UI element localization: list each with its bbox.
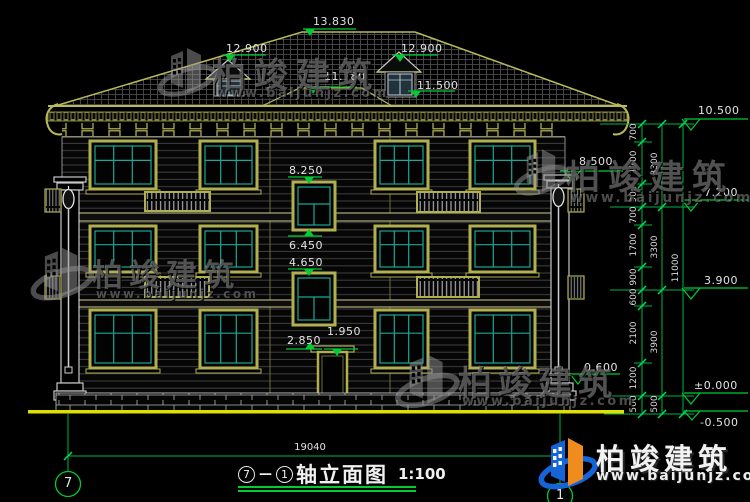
- railing: [417, 277, 479, 297]
- dim-chain-middle-label: 3900: [650, 322, 660, 362]
- watermark-url: www.baijunjz.com: [96, 287, 259, 301]
- window: [86, 310, 160, 373]
- dim-chain-inner-label: 2100: [629, 313, 639, 353]
- window: [196, 310, 261, 373]
- railing: [145, 192, 210, 211]
- watermark-url: www.baijunjz.com: [462, 394, 635, 409]
- cad-elevation-drawing: 13.830 12.900 12.900 11.780 11.500 8.500…: [0, 0, 750, 502]
- title-scale: 1:100: [398, 465, 446, 483]
- elevation-label-dormer-sill: 11.500: [417, 79, 459, 92]
- dim-chain-middle-label: 500: [650, 384, 660, 424]
- title-axis-end: 1: [276, 466, 293, 483]
- dim-chain-middle-label: 3300: [650, 227, 660, 267]
- right-level-label: 10.500: [698, 104, 740, 117]
- window: [466, 226, 539, 277]
- title-dash: —: [259, 467, 272, 482]
- brand-logo-icon: [538, 438, 598, 492]
- total-width-dimension: 19040: [288, 442, 332, 453]
- stair-window-upper: [293, 182, 335, 230]
- dentil-row: [62, 123, 565, 136]
- vent: [568, 276, 584, 299]
- axis-number-left: 7: [64, 476, 72, 491]
- right-level-label: -0.500: [700, 416, 738, 429]
- window: [371, 226, 432, 277]
- window: [371, 141, 432, 194]
- ground-line: [28, 410, 624, 414]
- watermark-url: www.baijunjz.com: [570, 190, 750, 206]
- axis-number-right: 1: [556, 488, 564, 502]
- eave-cornice: [46, 104, 628, 137]
- dim-chain-inner-label: 600: [629, 277, 639, 317]
- right-level-label: ±0.000: [694, 379, 738, 392]
- elevation-label-stair-window2-top: 4.650: [289, 256, 323, 269]
- title-axis-start: 7: [238, 466, 255, 483]
- window: [196, 141, 261, 194]
- elevation-label-stair-window-top: 8.250: [289, 164, 323, 177]
- elevation-label-door-head: 1.950: [327, 325, 361, 338]
- watermark-url: www.baijunjz.com: [216, 86, 389, 101]
- drawing-title: 7 — 1 轴立面图 1:100: [238, 459, 446, 489]
- dim-chain-outer-label: 11000: [671, 248, 681, 288]
- window: [86, 141, 160, 194]
- window: [371, 310, 432, 373]
- railing: [417, 192, 480, 212]
- title-underline: [238, 490, 416, 492]
- elevation-label-entry-transom: 2.850: [287, 334, 321, 347]
- elevation-label-dormer-right: 12.900: [401, 42, 443, 55]
- elevation-label-stair-window-sill: 6.450: [289, 239, 323, 252]
- stair-window-lower: [293, 273, 335, 325]
- vent: [45, 189, 61, 212]
- brand-url: www.baijunjz.com: [596, 468, 750, 484]
- right-level-label: 3.900: [704, 274, 738, 287]
- elevation-label-ridge: 13.830: [313, 15, 355, 28]
- title-name: 轴立面图: [296, 459, 388, 489]
